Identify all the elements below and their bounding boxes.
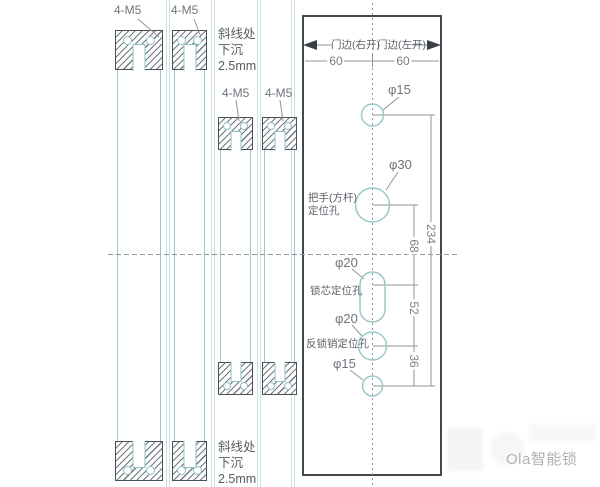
screw-hole [146, 466, 155, 475]
mounting-block [218, 362, 253, 395]
mounting-block [172, 441, 207, 481]
screw-hole [267, 382, 275, 390]
recess-note-line: 下沉 [218, 455, 256, 471]
phi30-label: φ30 [389, 157, 412, 172]
template-strip-1 [115, 30, 163, 481]
dim-68: 68 [407, 237, 421, 254]
spindle-slot [230, 362, 241, 382]
dim-60-left: 60 [327, 54, 344, 68]
phi15-top-label: φ15 [388, 82, 411, 97]
screw-hole [223, 122, 231, 130]
dim-52: 52 [407, 299, 421, 316]
recess-note-top: 斜线处 下沉 2.5mm [218, 26, 256, 74]
handle-hole-name: 把手(方杆) 定位孔 [308, 192, 357, 218]
mounting-block [262, 362, 297, 395]
screw-hole [267, 122, 275, 130]
screw-hole [123, 466, 132, 475]
m5-label-1: 4-M5 [114, 3, 141, 17]
drill-template-plate [302, 15, 442, 476]
screw-hole [146, 36, 155, 45]
guide-line [214, 0, 215, 487]
screw-hole [284, 122, 292, 130]
spindle-slot [183, 44, 196, 71]
m5-label-4: 4-M5 [265, 86, 292, 100]
mounting-block [115, 441, 163, 481]
mounting-block [172, 30, 207, 70]
spindle-slot [274, 362, 285, 382]
phi20-core-label: φ20 [335, 255, 358, 270]
lock-installation-drawing: 4-M5 4-M5 4-M5 4-M5 斜线处 下沉 2.5mm 斜线处 下沉 … [0, 0, 600, 487]
spindle-slot [133, 44, 146, 71]
recess-note-line: 斜线处 [218, 26, 256, 42]
handle-hole-name-line: 把手(方杆) [308, 192, 357, 205]
guide-line [211, 0, 212, 487]
guide-line [257, 0, 258, 487]
screw-hole [240, 122, 248, 130]
handle-hole-name-line: 定位孔 [308, 205, 357, 218]
template-strip-4 [262, 117, 297, 395]
spindle-slot [230, 131, 241, 151]
screw-hole [240, 382, 248, 390]
strip-body [220, 118, 251, 394]
recess-note-line: 斜线处 [218, 439, 256, 455]
recess-note-bottom: 斜线处 下沉 2.5mm [218, 439, 256, 487]
m5-label-2: 4-M5 [171, 3, 198, 17]
door-edge-right-open-label: 门边(右开) [331, 39, 380, 52]
m5-label-3: 4-M5 [222, 86, 249, 100]
screw-hole [123, 36, 132, 45]
watermark-ghost [530, 424, 596, 442]
screw-hole [284, 382, 292, 390]
mounting-block [218, 117, 253, 150]
guide-line [260, 0, 261, 487]
recess-note-line: 2.5mm [218, 471, 256, 487]
deadbolt-hole-name: 反锁销定位孔 [306, 338, 369, 351]
strip-body [117, 31, 161, 480]
template-strip-2 [172, 30, 207, 481]
recess-note-line: 2.5mm [218, 58, 256, 74]
door-edge-left-open-label: 门边(左开) [377, 39, 426, 52]
guide-line [169, 0, 170, 487]
phi20-deadbolt-label: φ20 [335, 311, 358, 326]
spindle-slot [183, 441, 196, 468]
spindle-slot [133, 441, 146, 468]
dim-36: 36 [407, 352, 421, 369]
spindle-slot [274, 131, 285, 151]
watermark-brand: Ola智能锁 [506, 448, 577, 469]
strip-body [174, 31, 205, 480]
guide-line [166, 0, 167, 487]
template-strip-3 [218, 117, 253, 395]
screw-hole [223, 382, 231, 390]
strip-body [264, 118, 295, 394]
recess-note-line: 下沉 [218, 42, 256, 58]
dim-60-right: 60 [394, 54, 411, 68]
dim-234: 234 [424, 222, 438, 246]
mounting-block [115, 30, 163, 70]
drawing-lines [0, 0, 600, 487]
mounting-block [262, 117, 297, 150]
watermark-ghost [447, 427, 483, 471]
phi15-bottom-label: φ15 [333, 356, 356, 371]
core-hole-name: 锁芯定位孔 [310, 285, 363, 298]
